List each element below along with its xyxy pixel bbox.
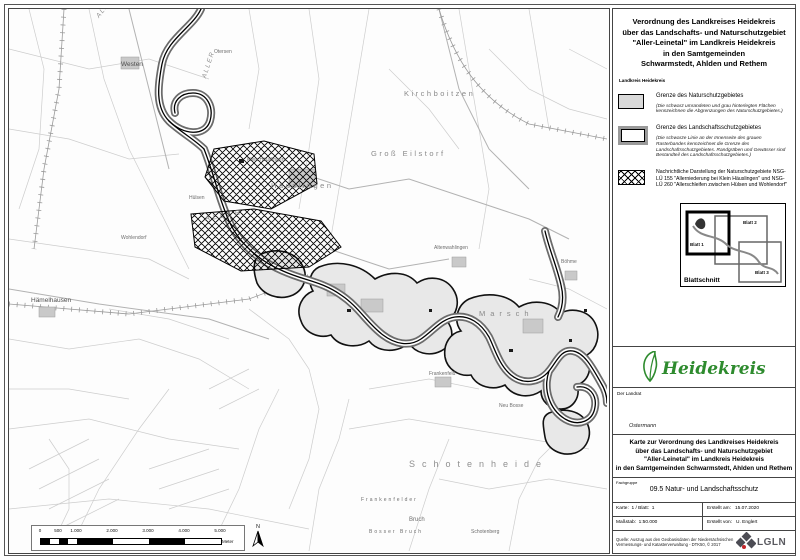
lgln-logo: LGLN: [736, 532, 786, 552]
blatt-2-label: Blatt 2: [743, 220, 757, 225]
map-label: Hämelhausen: [31, 297, 71, 304]
map-label: Wohlendorf: [121, 235, 146, 241]
map-label: Bosser Bruch: [369, 529, 423, 535]
legend-title: Grenze des Naturschutzgebietes: [656, 93, 790, 100]
map-label: Schotenheide: [409, 459, 548, 469]
scale-tick-label: 1.000: [70, 528, 81, 533]
signature-name: Ostermann: [629, 423, 656, 429]
title-legend-section: Verordnung des Landkreises Heidekreis üb…: [613, 9, 795, 347]
karte-cell: Karte: 1 / Blatt: 1: [613, 503, 703, 516]
map-label: Altenwahlingen: [434, 245, 468, 251]
blattschnitt-inset: Blatt 1 Blatt 2 Blatt 3 Blattschnitt: [680, 203, 786, 287]
source-text: Quelle: Auszug aus den Geobasisdaten der…: [613, 537, 736, 547]
legend-item-crosshatch: Nachrichtliche Darstellung der Naturschu…: [618, 169, 790, 188]
legend-note: (Die schwarz umrandeten und grau hinterl…: [656, 104, 790, 116]
map-label: Otersen: [214, 49, 232, 55]
map-label: Häuslingen: [271, 181, 334, 190]
scale-tick-label: 5.000: [214, 528, 225, 533]
fachgruppe-section: Fachgruppe 09.5 Natur- und Landschaftssc…: [613, 478, 795, 503]
title-line: über das Landschafts- und Naturschutzgeb…: [618, 28, 790, 39]
lsg-symbol: [618, 125, 656, 159]
map-label: Frankenfelder: [361, 497, 418, 503]
map-title-line: über das Landschafts- und Naturschutzgeb…: [615, 448, 793, 457]
map-label: Groß Eilstorf: [371, 149, 446, 158]
fachgruppe-label: Fachgruppe: [616, 480, 637, 485]
north-arrow: N: [249, 525, 267, 551]
ordinance-title: Verordnung des Landkreises Heidekreis üb…: [618, 17, 790, 70]
landrat-label: Der Landrat: [617, 391, 641, 396]
legend-note: (Die schwarze Linie an der Innenseite de…: [656, 136, 790, 159]
blatt-1-label: Blatt 1: [690, 242, 704, 247]
crosshatch-symbol: [618, 169, 656, 188]
map-canvas: Westen ALLER ALLER ALLER Häuslingen Klei…: [8, 8, 610, 554]
map-label: Bruch: [409, 517, 425, 523]
legend-item-nsg: Grenze des Naturschutzgebietes (Die schw…: [618, 93, 790, 116]
map-sheet: Westen ALLER ALLER ALLER Häuslingen Klei…: [0, 0, 800, 560]
legend-item-lsg: Grenze des Landschaftsschutzgebietes (Di…: [618, 125, 790, 159]
scale-unit-label: Meter: [222, 539, 234, 544]
source-section: Quelle: Auszug aus den Geobasisdaten der…: [613, 531, 795, 553]
scale-bar: 0 500 1.000 2.000 3.000 4.000 5.000 Mete…: [31, 525, 245, 551]
landkreis-label: Landkreis Heidekreis: [619, 78, 790, 83]
legend-title: Nachrichtliche Darstellung der Naturschu…: [656, 169, 790, 188]
map-title-line: "Aller-Leinetal" im Landkreis Heidekreis: [615, 456, 793, 465]
erstellt-von-cell: Erstellt von: U. Englert: [703, 517, 795, 530]
nsg-symbol: [618, 93, 656, 116]
map-label: Neu Bosse: [499, 403, 523, 409]
blattschnitt-label: Blattschnitt: [684, 277, 720, 284]
legend-title: Grenze des Landschaftsschutzgebietes: [656, 125, 790, 132]
erstellt-am-cell: Erstellt am: 15.07.2020: [703, 503, 795, 516]
north-arrow-icon: [251, 530, 265, 548]
massstab-cell: Maßstab: 1:50.000: [613, 517, 703, 530]
title-line: in den Samtgemeinden: [618, 49, 790, 60]
blatt-3-label: Blatt 3: [755, 270, 769, 275]
lgln-logo-icon: [736, 532, 756, 552]
scale-tick-label: 3.000: [142, 528, 153, 533]
info-row-karte: Karte: 1 / Blatt: 1 Erstellt am: 15.07.2…: [613, 503, 795, 517]
scale-tick-label: 500: [54, 528, 62, 533]
map-title-section: Karte zur Verordnung des Landkreises Hei…: [613, 435, 795, 478]
info-row-massstab: Maßstab: 1:50.000 Erstellt von: U. Engle…: [613, 517, 795, 531]
map-label: Böhme: [561, 259, 577, 265]
map-label: Kirchboitzen: [404, 89, 475, 98]
fachgruppe-value: 09.5 Natur- und Landschaftsschutz: [613, 486, 795, 493]
signature-section: Der Landrat Ostermann: [613, 388, 795, 435]
map-label: Frankenfeld: [429, 371, 455, 377]
scale-tick-label: 4.000: [178, 528, 189, 533]
map-label: Hülsen: [189, 195, 205, 201]
scale-tick-label: 2.000: [106, 528, 117, 533]
lgln-logo-text: LGLN: [757, 537, 786, 548]
map-label: Klein Häuslingen: [247, 157, 285, 163]
map-title-line: in den Samtgemeinden Schwarmstedt, Ahlde…: [615, 465, 793, 474]
scale-bar-graphic: [40, 538, 222, 545]
scale-tick-label: 0: [39, 528, 42, 533]
title-line: "Aller-Leinetal" im Landkreis Heidekreis: [618, 38, 790, 49]
map-label: Marsch: [479, 309, 534, 318]
heidekreis-logo-text: Heidekreis: [661, 359, 766, 379]
legend-panel: Verordnung des Landkreises Heidekreis üb…: [612, 8, 796, 554]
map-label: Westen: [121, 61, 143, 68]
map-title-line: Karte zur Verordnung des Landkreises Hei…: [615, 439, 793, 448]
heidekreis-logo: Heidekreis: [634, 351, 774, 383]
basemap-svg: [9, 9, 607, 551]
heidekreis-logo-section: Heidekreis: [613, 347, 795, 388]
title-line: Verordnung des Landkreises Heidekreis: [618, 17, 790, 28]
map-label: Schotenberg: [471, 529, 499, 535]
title-line: Schwarmstedt, Ahlden und Rethem: [618, 59, 790, 70]
